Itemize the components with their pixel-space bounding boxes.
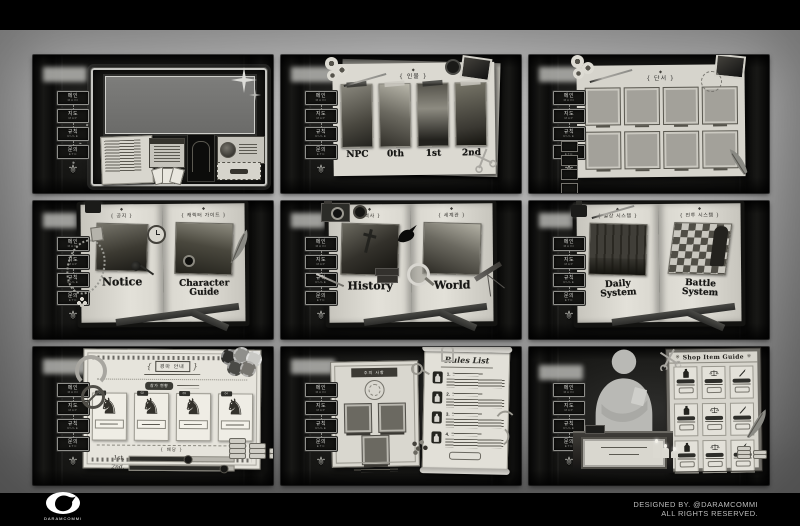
page-title: Daily System [592, 279, 645, 301]
book-page-daily-system[interactable]: ◆ { 일상 시스템 } Daily System [576, 204, 659, 323]
notice-note[interactable] [100, 135, 154, 185]
nav-button-sublabel: etc [317, 153, 325, 156]
item-name-badge [705, 416, 723, 420]
shop-item-cell[interactable] [702, 440, 726, 473]
panel-clues: 메인 main 지도 map 규칙 rule 문의 etc ⚜ [529, 55, 769, 193]
character-card-label: 1st [426, 149, 442, 159]
nav-button[interactable]: 지도 map [553, 401, 585, 415]
panel-characters: 메인 main 지도 map 규칙 rule 문의 etc ⚜ [281, 55, 521, 193]
buy-button[interactable] [679, 461, 694, 467]
nav-button-sublabel: etc [317, 299, 325, 302]
coin-stacks-icon [737, 447, 767, 459]
nav-button-sublabel: etc [565, 299, 573, 302]
page-title: Character Guide [163, 279, 245, 298]
nav-button-sublabel: rule [315, 427, 326, 430]
tape-icon [422, 80, 442, 87]
rose-icon [131, 261, 141, 271]
pen-icon [737, 368, 746, 378]
scales-icon [709, 368, 718, 378]
diamond-icon: ◆ [163, 206, 245, 211]
horse-icon: ♞ [141, 394, 161, 421]
nav-button-sublabel: rule [67, 135, 78, 138]
page-collage-image [667, 222, 732, 275]
nav-button-sublabel: rule [315, 135, 326, 138]
nav-button-sublabel: rule [315, 281, 326, 284]
sheet-header-label: { 인물 } [399, 73, 428, 81]
slider-track[interactable] [129, 455, 235, 462]
nav-button-sublabel: map [565, 409, 574, 412]
credits-line-2: ALL RIGHTS RESERVED. [633, 509, 758, 519]
slider-knob[interactable] [219, 464, 228, 473]
raven-icon [394, 221, 425, 247]
nav-button-sublabel: rule [563, 135, 574, 138]
diamond-icon: ◆ [411, 206, 493, 211]
nav-button-sublabel: main [316, 391, 327, 394]
open-book: ◆ { 역사 } History ◆ { 세계관 } World [328, 203, 493, 322]
scroll-title: Rules List [425, 354, 509, 366]
nav-button[interactable]: 메인 main [305, 91, 337, 105]
shop-item-cell[interactable] [702, 403, 726, 436]
nav-button[interactable]: 문의 etc [305, 437, 337, 451]
photo-frames [332, 435, 418, 464]
fleur-ornament-icon: ⚜ [68, 455, 79, 467]
slider-fill [130, 465, 226, 470]
character-card[interactable]: 0th [379, 83, 412, 159]
credits-line-1: DESIGNED BY. @DARAMCOMMI [633, 500, 758, 510]
odds-slider-label: 2nd. [109, 464, 125, 471]
rule-number: 2. [446, 392, 450, 397]
odds-box [136, 420, 165, 429]
slider-knob[interactable] [184, 455, 193, 464]
pen-icon [737, 405, 746, 415]
photo-frame[interactable] [362, 436, 388, 464]
brand-logo-text: DARAMCOMMI [44, 516, 82, 521]
scroll-more-button[interactable] [449, 452, 481, 461]
ink-disc-icon [353, 205, 367, 219]
nav-button-sublabel: map [317, 263, 326, 266]
keyhole-icon [185, 257, 193, 265]
character-card-label: NPC [346, 150, 368, 160]
design-showcase-sheet: 메인 main 지도 map 규칙 rule 문의 etc ⚜ [0, 0, 800, 526]
guide-sheet: 주의 사항 [330, 360, 420, 468]
horse-entry-card[interactable]: 03 ♞ [175, 393, 210, 441]
clue-card-slot[interactable] [702, 87, 736, 123]
prohibition-stamp-icon [81, 385, 105, 409]
brand-logo-icon [45, 491, 81, 515]
nav-button[interactable]: 메인 main [553, 383, 585, 397]
panel-shop: 메인 main 지도 map 규칙 rule 문의 etc ⚜ [529, 347, 769, 485]
page-header: { 전투 시스템 } [659, 211, 741, 219]
nav-button[interactable]: 지도 map [553, 109, 585, 123]
rule-number: 1. [447, 372, 451, 377]
nav-button-sublabel: map [69, 117, 78, 120]
clue-card-slot[interactable] [585, 88, 619, 124]
nav-button-sublabel: etc [317, 445, 325, 448]
lantern-icon [431, 431, 441, 443]
photo-frame[interactable] [345, 404, 371, 432]
nav-button[interactable]: 문의 etc [305, 291, 337, 305]
shop-item-cell[interactable] [701, 366, 725, 399]
nav-button[interactable]: 지도 map [553, 255, 585, 269]
panel-side-nav: 메인 main 지도 map 규칙 rule 문의 etc ⚜ [303, 383, 339, 467]
gauge-widget[interactable] [217, 136, 265, 164]
buy-button[interactable] [735, 460, 750, 466]
character-card-image [454, 82, 487, 146]
buy-button[interactable] [706, 387, 721, 393]
buy-button[interactable] [734, 387, 749, 393]
horse-icon: ♞ [225, 394, 245, 421]
rule-item[interactable]: 2. [432, 391, 500, 408]
panel-systems-book: 메인 main 지도 map 규칙 rule 문의 etc ⚜ [529, 201, 769, 339]
bottle-icon [682, 442, 691, 452]
nav-button-sublabel: etc [69, 445, 77, 448]
clue-card-slot[interactable] [624, 88, 658, 124]
ink-disc-icon [445, 59, 461, 75]
photo-frame[interactable] [379, 403, 405, 431]
nav-button[interactable]: 메인 main [553, 237, 585, 251]
item-name-badge [705, 379, 723, 383]
nav-button[interactable]: 문의 etc [57, 145, 89, 159]
nav-button[interactable]: 규칙 rule [553, 127, 585, 141]
rule-number: 3. [446, 412, 450, 417]
fleur-ornament-icon: ⚜ [68, 163, 79, 175]
arch-motif [192, 141, 210, 172]
rule-item-text: 2. [446, 392, 504, 409]
lantern-icon [432, 411, 442, 423]
laurel-bracket-icon: } [193, 362, 198, 371]
odds-box [178, 420, 207, 429]
nav-button[interactable]: 규칙 rule [305, 419, 337, 433]
slider-track[interactable] [129, 464, 235, 471]
character-card[interactable]: NPC [341, 84, 374, 160]
fleur-ornament-icon: ⚜ [68, 309, 79, 321]
rule-number: 4. [445, 432, 449, 437]
ink-bottle-icon [571, 205, 587, 217]
racing-title-label: 경마 안내 [155, 361, 190, 372]
rosette-seal-icon [364, 380, 384, 400]
camera-icon [321, 203, 350, 222]
buy-button[interactable] [707, 461, 722, 467]
rule-item-text: 3. [446, 412, 504, 429]
poker-chips-icon [221, 347, 265, 377]
character-card-image [416, 82, 449, 146]
shop-item-cell[interactable] [729, 365, 753, 398]
magnifier-icon [407, 263, 430, 286]
brand-logo: DARAMCOMMI [44, 491, 82, 521]
status-row: 참가 현황 [84, 381, 260, 390]
buy-button[interactable] [679, 424, 694, 430]
photo [460, 55, 493, 82]
page-collage-image [588, 223, 647, 277]
candles-icon [653, 443, 678, 458]
beads-icon [411, 439, 429, 455]
page-collage-image [174, 222, 233, 276]
diamond-icon: ◆ [659, 206, 741, 211]
nav-button-sublabel: main [564, 245, 575, 248]
credits: DESIGNED BY. @DARAMCOMMI ALL RIGHTS RESE… [633, 500, 758, 520]
horse-number-badge: 04 [221, 391, 232, 396]
odds-box [94, 420, 123, 429]
slider-fill [130, 456, 190, 460]
clue-card-slot[interactable] [664, 132, 698, 168]
horse-icon: ♞ [183, 394, 203, 421]
banner-screen [105, 76, 255, 134]
clue-card-slot[interactable] [586, 132, 620, 168]
screens-grid: 메인 main 지도 map 규칙 rule 문의 etc ⚜ [33, 55, 769, 485]
asterism-icon: ※ [747, 353, 751, 359]
laurel-bracket-icon: { [147, 362, 152, 371]
rule-item-text: 1. [446, 372, 504, 389]
nav-button[interactable]: 메인 main [305, 383, 337, 397]
clue-card-slot[interactable] [663, 88, 697, 124]
nav-button-sublabel: main [564, 391, 575, 394]
coin-stacks-icon [229, 439, 273, 459]
panel-notice-book: 메인 main 지도 map 규칙 rule 문의 etc ⚜ [33, 201, 273, 339]
sub-menu[interactable] [561, 141, 578, 193]
shop-board-title: Shop Item Guide [683, 353, 744, 361]
dial-icon [220, 142, 236, 158]
nav-button-sublabel: rule [563, 281, 574, 284]
page-collage-image [422, 222, 481, 276]
nav-button[interactable]: 지도 map [305, 401, 337, 415]
scales-icon [710, 442, 719, 452]
ink-bottle-icon [85, 201, 101, 213]
nav-button-sublabel: main [316, 245, 327, 248]
nav-button-sublabel: rule [563, 427, 574, 430]
tape-icon [384, 80, 404, 87]
page-header: { 공지 } [81, 212, 163, 220]
nav-button[interactable]: 규칙 rule [57, 127, 89, 141]
divider [97, 378, 247, 380]
rules-scroll: Rules List 1. [422, 347, 511, 474]
item-name-badge [677, 379, 695, 383]
panel-side-nav: 메인 main 지도 map 규칙 rule 문의 etc ⚜ [55, 91, 91, 175]
nav-button[interactable]: 지도 map [305, 255, 337, 269]
clock-icon [147, 225, 166, 244]
page-header: { 세계관 } [411, 211, 493, 219]
horse-number-badge: 02 [137, 391, 148, 396]
nav-button[interactable]: 규칙 rule [305, 127, 337, 141]
schedule-widget[interactable] [149, 138, 185, 168]
dark-book[interactable] [187, 134, 215, 182]
rule-item-text: 4. [445, 432, 503, 449]
page-title: Battle System [674, 279, 727, 300]
photo-frames [332, 403, 418, 432]
panel-side-nav: 메인 main 지도 map 규칙 rule 문의 etc ⚜ [551, 237, 587, 321]
horse-number-badge: 03 [179, 391, 190, 396]
nav-button-sublabel: map [565, 263, 574, 266]
nav-button[interactable]: 메인 main [553, 91, 585, 105]
panel-main-hub: 메인 main 지도 map 규칙 rule 문의 etc ⚜ [33, 55, 273, 193]
ornate-frame [91, 68, 267, 186]
odds-box [220, 421, 249, 430]
postage-stamp-icon [90, 226, 104, 241]
fleur-ornament-icon: ⚜ [564, 309, 575, 321]
nav-button[interactable]: 지도 map [57, 109, 89, 123]
rule-item[interactable]: 3. [432, 411, 500, 428]
flower-icon [77, 297, 87, 307]
book-stack-icon [375, 269, 399, 283]
nav-button-sublabel: main [68, 391, 79, 394]
horseshoe-icon [75, 355, 107, 387]
paperclip-icon [441, 347, 454, 362]
rule-item[interactable]: 4. [431, 431, 499, 448]
lantern-icon [433, 371, 443, 383]
status-badge: 참가 현황 [145, 382, 173, 390]
nav-button[interactable]: 메인 main [305, 237, 337, 251]
page-header: { 일상 시스템 } [577, 212, 659, 220]
buy-button[interactable] [678, 387, 693, 393]
lantern-icon [432, 391, 442, 403]
bottle-icon [681, 405, 690, 415]
nav-button-sublabel: etc [565, 445, 573, 448]
panel-side-nav: 메인 main 지도 map 규칙 rule 문의 etc ⚜ [303, 91, 339, 175]
item-name-badge [706, 453, 724, 457]
nav-button-sublabel: rule [67, 427, 78, 430]
bottle-icon [681, 368, 690, 378]
odds-slider[interactable]: 2nd. [84, 463, 260, 471]
open-book: ◆ { 일상 시스템 } Daily System ◆ { 전투 시스템 } B… [576, 203, 741, 322]
item-name-badge [733, 378, 751, 382]
nav-button-sublabel: etc [69, 299, 77, 302]
character-card-image [341, 84, 374, 148]
nav-button[interactable]: 메인 main [57, 91, 89, 105]
nav-button-sublabel: main [68, 99, 79, 102]
character-card[interactable]: 1st [416, 82, 449, 158]
nav-button-sublabel: map [69, 409, 78, 412]
horse-entry-card[interactable]: 04 ♞ [217, 393, 252, 441]
ticket-label [230, 169, 248, 174]
blurred-title-badge [539, 365, 583, 380]
blurred-title-badge [291, 359, 335, 374]
item-name-badge [677, 416, 695, 420]
widget-header [150, 139, 184, 144]
nav-button[interactable]: 문의 etc [305, 145, 337, 159]
nav-button-sublabel: main [564, 99, 575, 102]
desk-tab-label [585, 425, 605, 434]
playing-cards-icon [151, 168, 191, 184]
character-card-label: 0th [387, 149, 404, 159]
ticket-stub[interactable] [217, 162, 261, 180]
panel-rules: 메인 main 지도 map 규칙 rule 문의 etc ⚜ [281, 347, 521, 485]
fleur-ornament-icon: ⚜ [316, 455, 327, 467]
nav-button-sublabel: main [316, 99, 327, 102]
nav-button-sublabel: etc [69, 153, 77, 156]
fleur-ornament-icon: ⚜ [316, 163, 327, 175]
rule-item[interactable]: 1. [432, 371, 500, 388]
panel-side-nav: 메인 main 지도 map 규칙 rule 문의 etc ⚜ [303, 237, 339, 321]
scales-icon [709, 405, 718, 415]
nav-button[interactable]: 규칙 rule [553, 273, 585, 287]
fleur-ornament-icon: ⚜ [316, 309, 327, 321]
postmark-stamp-icon [701, 71, 722, 92]
shop-item-cell[interactable] [674, 403, 698, 436]
nav-button-sublabel: map [317, 409, 326, 412]
nav-button[interactable]: 문의 etc [553, 291, 585, 305]
shop-item-cell[interactable] [674, 440, 698, 473]
panel-lore-book: 메인 main 지도 map 규칙 rule 문의 etc ⚜ [281, 201, 521, 339]
nav-button[interactable]: 지도 map [305, 109, 337, 123]
nav-button-sublabel: map [317, 117, 326, 120]
key-icon [411, 363, 423, 375]
item-name-badge [678, 453, 696, 457]
buy-button[interactable] [707, 424, 722, 430]
page-header: { 캐릭터 가이드 } [163, 211, 245, 219]
character-card-image [379, 83, 412, 147]
shop-board-header: ※ Shop Item Guide ※ [669, 351, 757, 363]
nav-button[interactable]: 규칙 rule [57, 419, 89, 433]
horse-entry-card[interactable]: 02 ♞ [133, 393, 168, 441]
nav-button[interactable]: 문의 etc [57, 437, 89, 451]
flourish-divider [441, 366, 493, 368]
panel-racing: 메인 main 지도 map 규칙 rule 문의 etc ⚜ [33, 347, 273, 485]
clue-card-slot[interactable] [625, 132, 659, 168]
shop-item-cell[interactable] [673, 366, 697, 399]
nav-button-sublabel: map [565, 117, 574, 120]
blurred-title-badge [43, 67, 87, 82]
banner-label: 주의 사항 [351, 368, 397, 378]
sheet-header-label: { 단서 } [646, 75, 675, 82]
